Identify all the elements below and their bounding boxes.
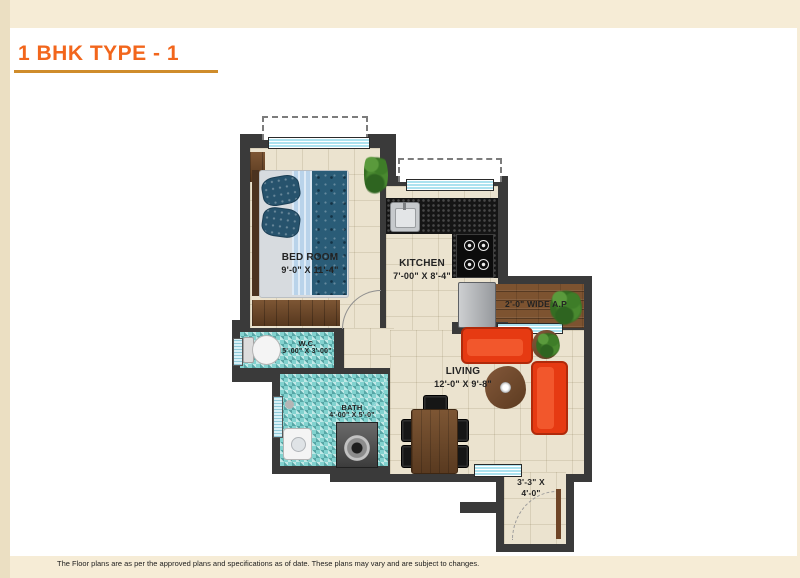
washbasin-icon — [283, 428, 312, 460]
entrance-dims-line1: 3'-3" X — [505, 477, 557, 488]
bed-blanket-icon — [312, 171, 347, 295]
disclaimer-text: The Floor plans are as per the approved … — [57, 559, 479, 568]
burner-icon — [478, 259, 489, 270]
air-passage-label: 2'-0" WIDE A.P — [494, 299, 578, 310]
toilet-icon — [252, 335, 281, 365]
wardrobe-icon — [252, 300, 340, 326]
floor-plan-page: 1 BHK TYPE - 1 — [0, 0, 800, 578]
bedroom-window-icon — [268, 137, 370, 149]
stove-icon — [456, 234, 494, 278]
bath-ventilator-icon — [273, 396, 283, 438]
bath-name: BATH — [322, 403, 382, 412]
living-label: LIVING 12'-0" X 9'-8" — [425, 366, 501, 390]
bedroom-dims: 9'-0" X 11'-4" — [260, 265, 360, 276]
bath-dims: 4'-00" X 5'-0" — [322, 412, 382, 421]
kitchen-window-icon — [406, 179, 494, 191]
shower-drain-icon — [285, 400, 294, 409]
refrigerator-icon — [458, 282, 496, 328]
basin-bowl — [291, 437, 306, 452]
burner-icon — [464, 240, 475, 251]
sofa-cushion — [467, 339, 523, 356]
living-name: LIVING — [425, 366, 501, 379]
sofa-icon — [461, 327, 533, 364]
kitchen-dims: 7'-00" X 8'-4" — [386, 271, 458, 282]
bedroom-name: BED ROOM — [260, 252, 360, 265]
bedroom-label: BED ROOM 9'-0" X 11'-4" — [260, 252, 360, 276]
faucet-icon — [403, 202, 406, 210]
wc-name: W.C. — [282, 339, 332, 348]
cup-icon — [500, 382, 511, 393]
kitchen-label: KITCHEN 7'-00" X 8'-4" — [386, 258, 458, 282]
washer-drum — [344, 435, 370, 461]
entrance-dims-line2: 4'-0" — [505, 488, 557, 499]
wc-label: W.C. 5'-00" X 3'-00" — [282, 339, 332, 357]
plant-icon — [536, 330, 560, 360]
plant-icon — [364, 150, 388, 198]
sofa-cushion — [537, 367, 554, 429]
bath-label: BATH 4'-00" X 5'-0" — [322, 403, 382, 421]
wc-dims: 5'-00" X 3'-00" — [282, 348, 332, 357]
kitchen-name: KITCHEN — [386, 258, 458, 271]
sofa-icon — [531, 361, 568, 435]
wc-ventilator-icon — [233, 338, 243, 366]
living-dims: 12'-0" X 9'-8" — [425, 379, 501, 390]
passage-floor — [344, 328, 394, 368]
sink-basin — [395, 208, 416, 228]
foyer-side-wall-stub — [460, 502, 498, 513]
title-underline — [14, 70, 218, 73]
living-bottom-window-icon — [474, 464, 522, 477]
air-passage-name: 2'-0" WIDE A.P — [494, 299, 578, 310]
page-edge-strip — [0, 0, 10, 578]
bed-headboard-icon — [252, 170, 259, 296]
kitchen-sink-icon — [390, 202, 420, 232]
burner-icon — [464, 259, 475, 270]
burner-icon — [478, 240, 489, 251]
dining-table-icon — [411, 409, 458, 474]
page-title: 1 BHK TYPE - 1 — [18, 42, 179, 66]
washing-machine-icon — [336, 422, 378, 468]
entrance-label: 3'-3" X 4'-0" — [505, 477, 557, 498]
